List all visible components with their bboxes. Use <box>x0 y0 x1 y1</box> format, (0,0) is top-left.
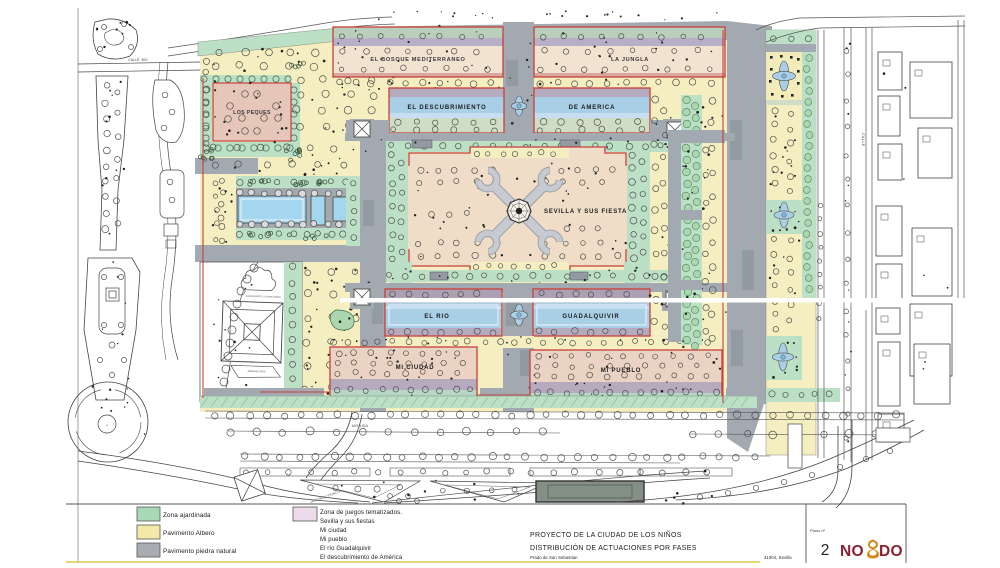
svg-text:El río Guadalquivir: El río Guadalquivir <box>320 546 371 552</box>
svg-text:DE AMERICA: DE AMERICA <box>569 105 616 111</box>
svg-text:EL BOSQUE MEDITERRANEO: EL BOSQUE MEDITERRANEO <box>370 57 465 63</box>
svg-text:PROYECTO DE LA CIUDAD DE LOS N: PROYECTO DE LA CIUDAD DE LOS NIÑOS <box>530 530 682 539</box>
svg-text:Prado de San Sebastian: Prado de San Sebastian <box>530 555 578 560</box>
svg-text:DO: DO <box>879 543 903 560</box>
svg-text:Mi ciudad: Mi ciudad <box>320 528 347 534</box>
svg-text:Pavimento Albero: Pavimento Albero <box>163 530 215 537</box>
svg-text:CALLE: CALLE <box>861 133 865 147</box>
svg-text:NO: NO <box>840 543 864 560</box>
svg-text:Sevilla y sus fiestas: Sevilla y sus fiestas <box>320 519 374 525</box>
svg-text:2: 2 <box>821 542 830 559</box>
svg-text:LOS PEQUES: LOS PEQUES <box>233 110 271 116</box>
svg-text:MI PUEBLO: MI PUEBLO <box>601 368 642 374</box>
svg-text:Mi pueblo: Mi pueblo <box>320 537 347 543</box>
svg-text:DISTRIBUCIÓN DE ACTUACIONES PO: DISTRIBUCIÓN DE ACTUACIONES POR FASES <box>530 543 697 552</box>
svg-text:AVENIDA: AVENIDA <box>352 424 369 428</box>
svg-text:EL RIO: EL RIO <box>424 314 449 320</box>
svg-text:Zona de juegos tematizados.: Zona de juegos tematizados. <box>320 509 402 516</box>
svg-text:Plano nº: Plano nº <box>810 529 826 533</box>
svg-text:MI CIUDAD: MI CIUDAD <box>396 365 435 371</box>
svg-text:CALLE. BIO: CALLE. BIO <box>128 58 148 62</box>
svg-text:GUADALQUIVIR: GUADALQUIVIR <box>562 314 619 320</box>
svg-text:41004, Sevilla: 41004, Sevilla <box>764 555 792 560</box>
svg-text:LA JUNGLA: LA JUNGLA <box>611 57 649 63</box>
svg-text:Pavimento piedra natural: Pavimento piedra natural <box>163 548 236 555</box>
svg-text:El descubrimiento de América: El descubrimiento de América <box>320 555 403 561</box>
svg-text:SEVILLA Y SUS FIESTAS: SEVILLA Y SUS FIESTAS <box>544 209 632 215</box>
svg-text:Zona ajardinada: Zona ajardinada <box>163 512 211 519</box>
svg-text:EL DESCUBRIMIENTO: EL DESCUBRIMIENTO <box>407 105 486 111</box>
